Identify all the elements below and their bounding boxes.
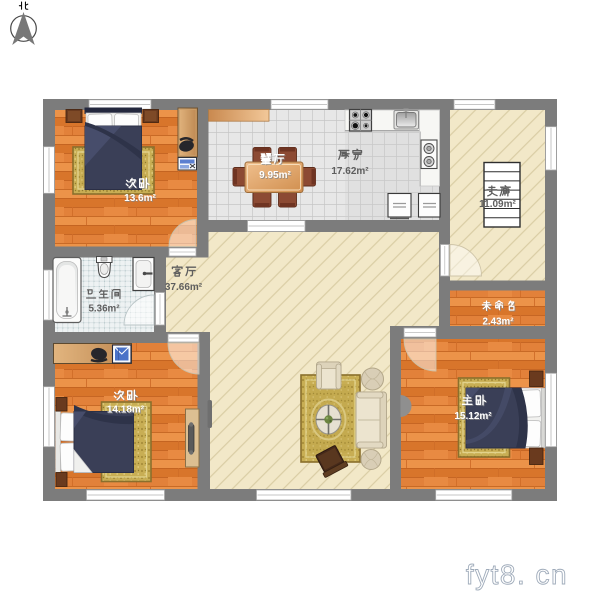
svg-text:13.6m²: 13.6m² [124, 193, 156, 204]
svg-text:11.09m²: 11.09m² [479, 199, 516, 210]
svg-text:2.43m²: 2.43m² [482, 317, 514, 328]
svg-text:37.66m²: 37.66m² [165, 282, 203, 293]
svg-text:17.62m²: 17.62m² [331, 166, 369, 177]
svg-text:15.12m²: 15.12m² [454, 411, 492, 422]
svg-text:9.95m²: 9.95m² [259, 170, 291, 181]
svg-text:fyt8. cn: fyt8. cn [466, 559, 568, 590]
svg-text:5.36m²: 5.36m² [88, 304, 120, 315]
svg-text:14.18m²: 14.18m² [107, 405, 145, 416]
